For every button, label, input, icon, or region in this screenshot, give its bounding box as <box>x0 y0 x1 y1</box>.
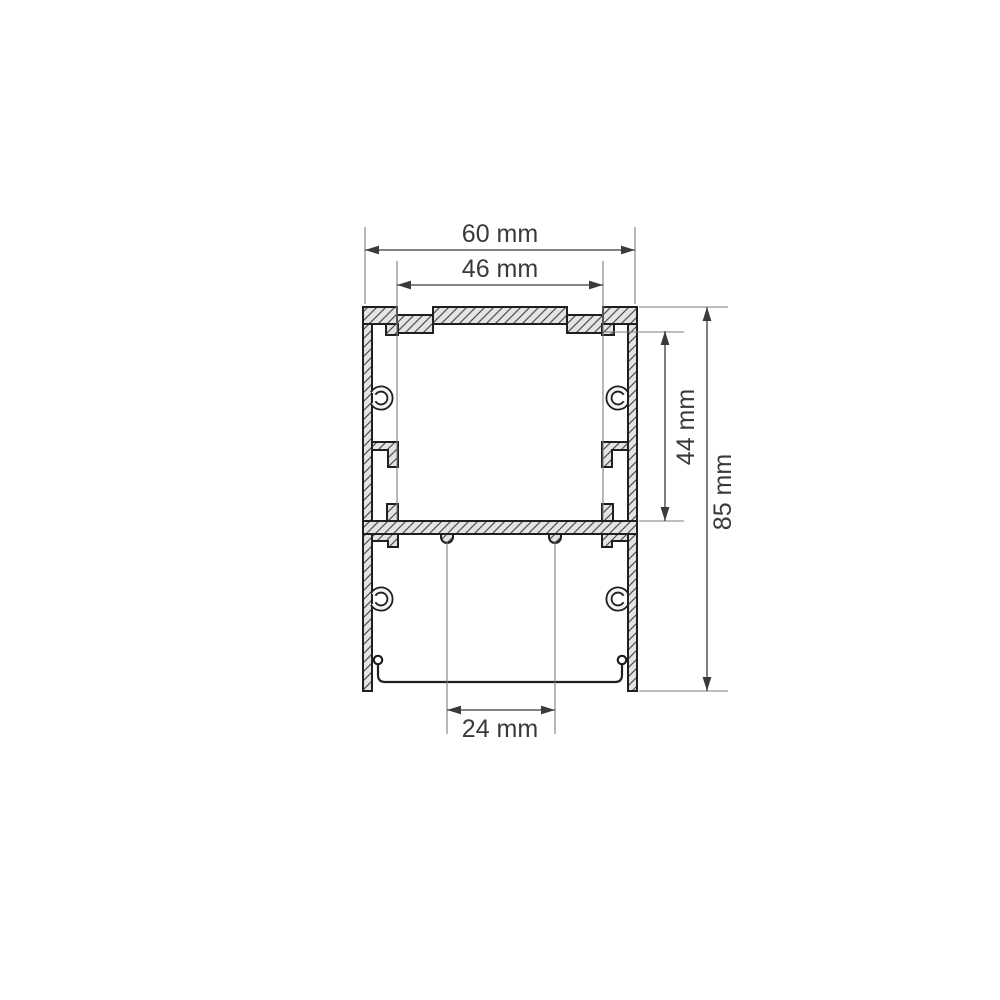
page-background <box>0 0 1000 1000</box>
divider-ledge-left <box>387 504 398 521</box>
middle-divider <box>363 521 637 534</box>
dimension-label-outer-width: 60 mm <box>462 220 538 248</box>
drawing-canvas: 60 mm 46 mm 24 mm 44 mm 85 mm <box>0 0 1000 1000</box>
groove-floor-right <box>567 315 603 333</box>
dimension-label-inner-width: 46 mm <box>462 255 538 283</box>
right-wall <box>628 307 637 691</box>
top-slot-leg-right <box>602 324 614 335</box>
dimension-label-outer-height: 85 mm <box>709 454 737 530</box>
top-slot-leg-left <box>386 324 398 335</box>
dimension-label-bottom-opening: 24 mm <box>462 715 538 743</box>
divider-ledge-right <box>602 504 613 521</box>
dimension-label-inner-height: 44 mm <box>672 389 700 465</box>
groove-floor-left <box>397 315 433 333</box>
profile-drawing-svg: 60 mm 46 mm 24 mm 44 mm 85 mm <box>0 0 1000 1000</box>
left-wall <box>363 307 372 691</box>
